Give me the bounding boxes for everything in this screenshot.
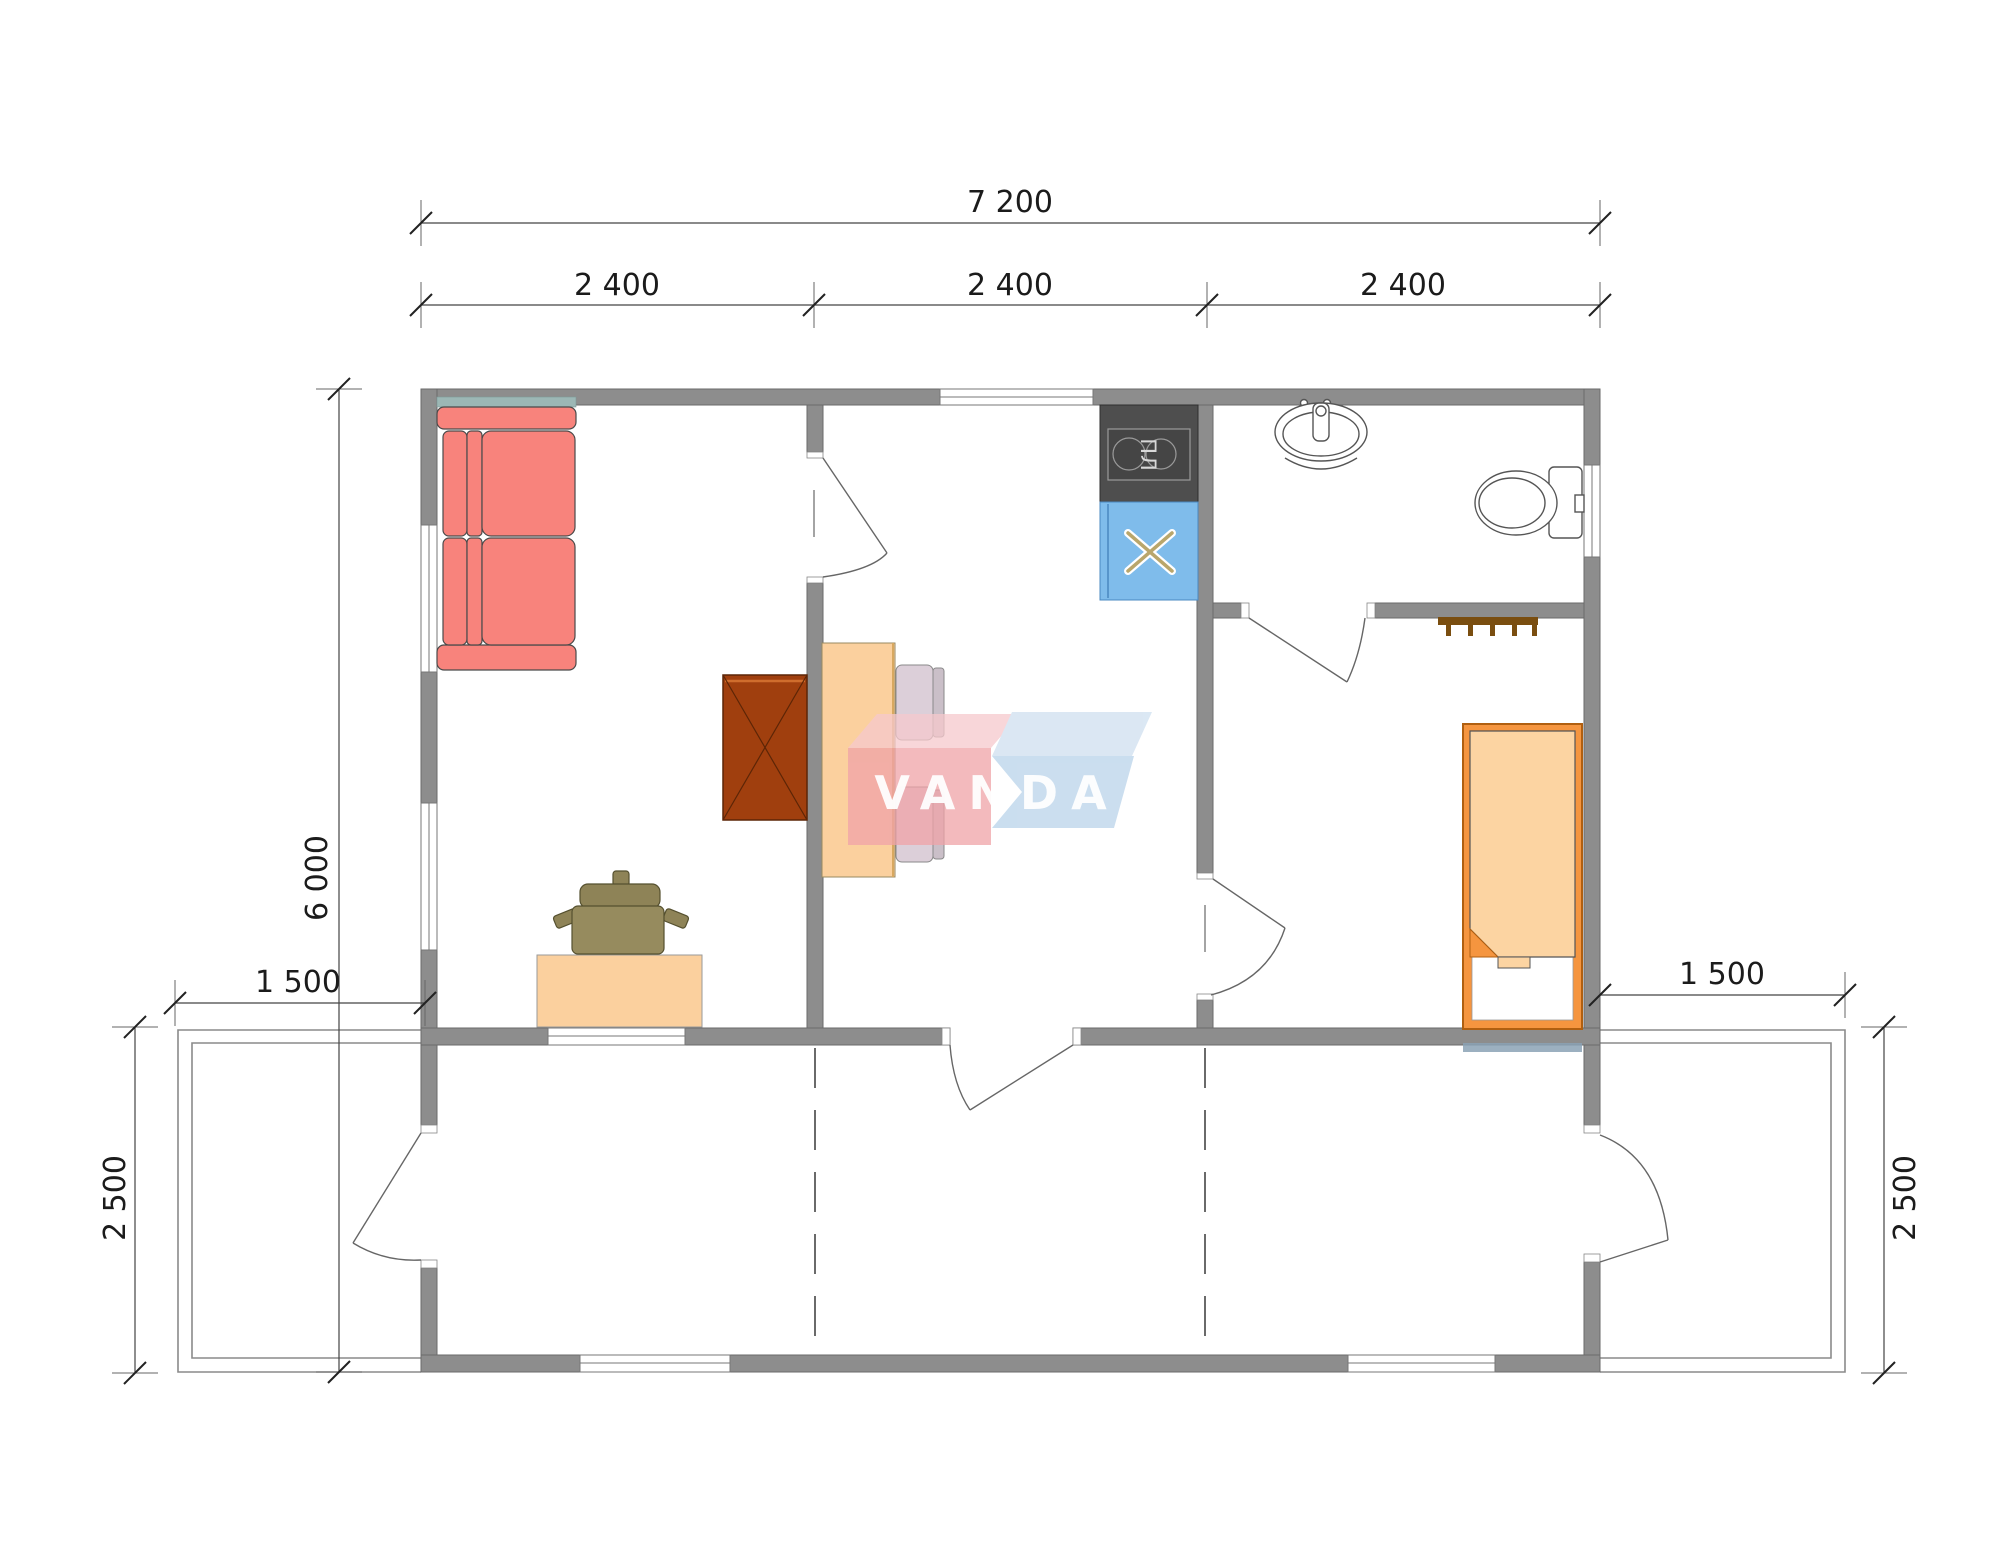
window [421, 803, 437, 950]
dim-right-porch-depth: 2 500 [1891, 1155, 1921, 1241]
door-terrace-right [1600, 1135, 1668, 1262]
dim-top-segment-3: 2 400 [1360, 271, 1446, 301]
dim-overall-depth: 6 000 [303, 835, 333, 921]
sofa [437, 397, 576, 670]
office-chair [553, 871, 690, 954]
windows [421, 389, 1600, 1372]
desk [537, 955, 702, 1027]
door-terrace-left [353, 1133, 421, 1260]
window [1348, 1355, 1495, 1372]
dim-top-segment-2: 2 400 [967, 271, 1053, 301]
kitchen-sink [1100, 502, 1198, 600]
window [548, 1028, 685, 1045]
dim-right-porch-width: 1 500 [1679, 960, 1765, 990]
window [421, 525, 437, 672]
wardrobe-cabinet [723, 675, 807, 820]
dim-left-porch-depth: 2 500 [101, 1155, 131, 1241]
window [940, 389, 1093, 405]
coat-rack [1438, 617, 1538, 636]
door-living-to-middle [823, 458, 887, 577]
window [1584, 465, 1600, 557]
right-porch-outline [1600, 1030, 1845, 1372]
dim-top-total: 7 200 [967, 188, 1053, 218]
axis-dashed-lines [815, 1048, 1205, 1355]
door-main-entrance [950, 1045, 1073, 1110]
door-middle-to-bedroom [1211, 879, 1285, 995]
walls [421, 389, 1600, 1372]
bathroom-sink-icon [1275, 400, 1367, 470]
floor-plan-page: 7 200 2 400 2 400 2 400 6 000 1 500 2 50… [0, 0, 2000, 1563]
left-porch-outline [178, 1030, 421, 1372]
vanda-watermark-text: VANDA [874, 766, 1119, 820]
stove-label: ПЛ [1136, 438, 1160, 472]
dim-left-porch-width: 1 500 [255, 968, 341, 998]
bed [1463, 724, 1582, 1052]
door-jambs [421, 452, 1600, 1268]
window [580, 1355, 730, 1372]
toilet-icon [1475, 467, 1584, 538]
door-bathroom [1249, 618, 1365, 682]
dim-top-segment-1: 2 400 [574, 271, 660, 301]
